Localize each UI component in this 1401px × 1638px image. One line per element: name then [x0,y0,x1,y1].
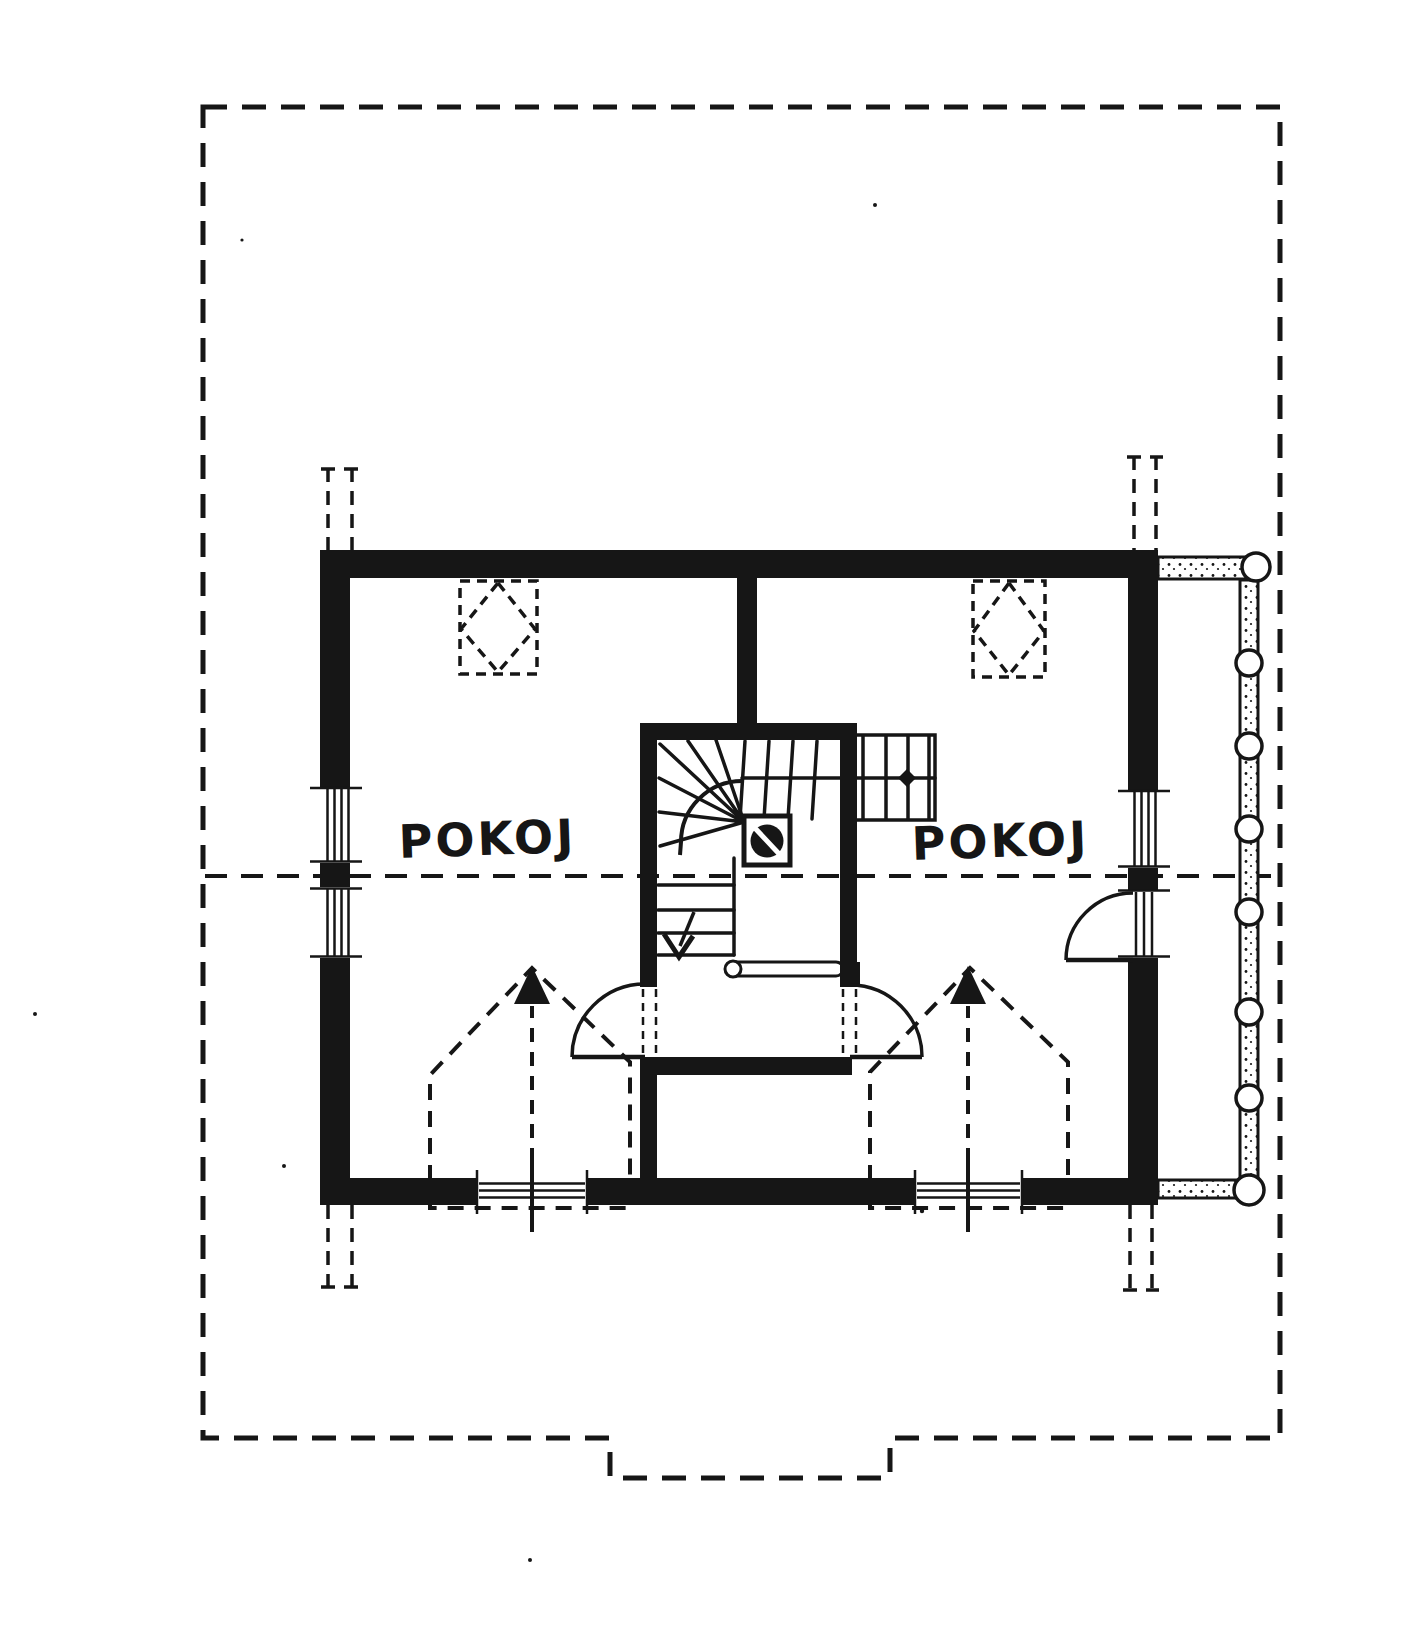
wall-east-lower [1128,958,1158,1205]
paper-background [0,0,1401,1638]
wall-west-upper [320,550,350,787]
stairwell-wall-west-lower [640,1057,657,1178]
floor-plan-sheet: POKOJ POKOJ [0,0,1401,1638]
stairwell-wall-west [640,740,657,987]
wall-west-lower [320,958,350,1205]
wall-south-2 [587,1178,915,1205]
stairwell-wall-south [645,1057,852,1075]
wall-north [320,550,1158,578]
room-label-left: POKOJ [398,809,577,869]
flue-square-circle-icon [744,816,790,865]
wall-south-3 [1022,1178,1158,1205]
wall-west-mullion [320,863,350,887]
stairwell-wall-north [640,723,857,740]
wall-east-upper [1128,550,1158,790]
room-label-right: POKOJ [911,811,1090,871]
floor-plan-drawing: POKOJ POKOJ [0,0,1401,1638]
stairwell-wall-east [840,740,857,962]
landing-railing [725,961,843,977]
wall-south-1 [320,1178,477,1205]
partition-wall [737,578,757,723]
wall-east-mullion [1128,868,1158,890]
